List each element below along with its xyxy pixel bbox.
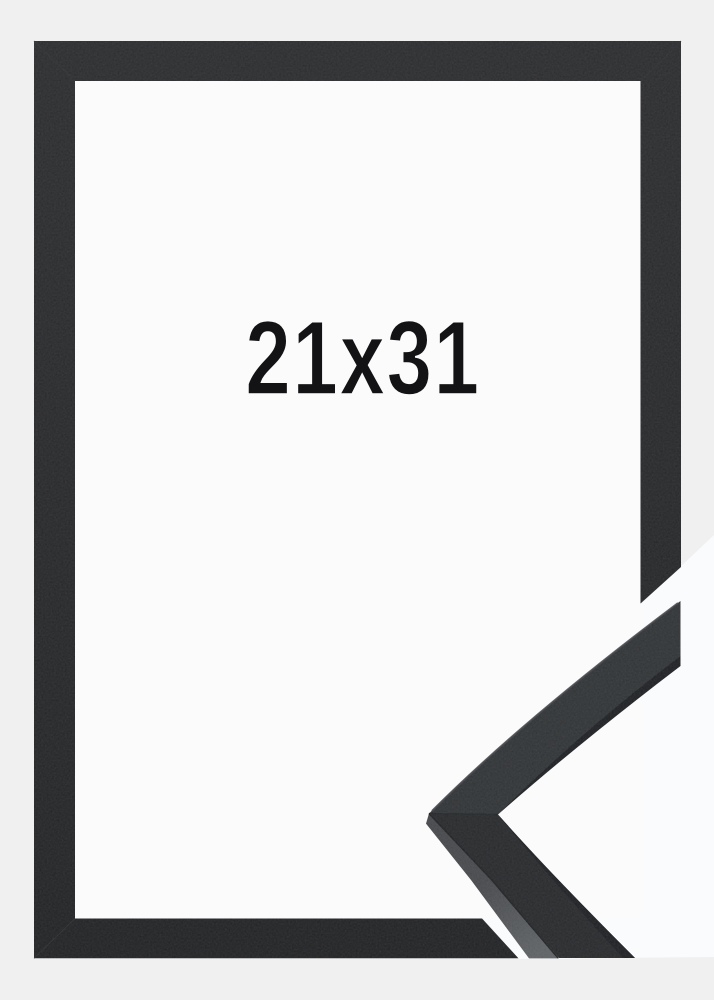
svg-text:21x31: 21x31 (245, 299, 481, 416)
